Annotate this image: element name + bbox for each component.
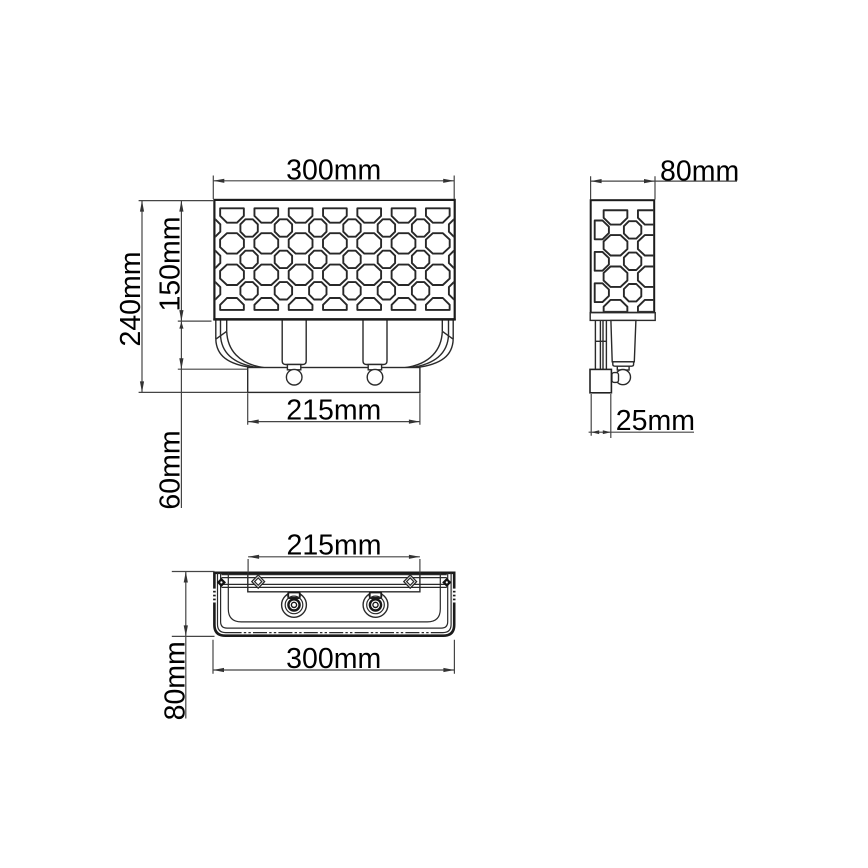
- svg-text:215mm: 215mm: [286, 395, 381, 427]
- svg-text:300mm: 300mm: [286, 643, 381, 675]
- svg-text:300mm: 300mm: [286, 155, 381, 187]
- svg-text:80mm: 80mm: [159, 641, 191, 720]
- svg-text:240mm: 240mm: [115, 251, 147, 346]
- svg-text:80mm: 80mm: [660, 155, 739, 187]
- svg-text:25mm: 25mm: [616, 405, 695, 437]
- svg-text:150mm: 150mm: [155, 216, 187, 311]
- svg-text:215mm: 215mm: [286, 530, 381, 562]
- svg-text:60mm: 60mm: [155, 430, 187, 509]
